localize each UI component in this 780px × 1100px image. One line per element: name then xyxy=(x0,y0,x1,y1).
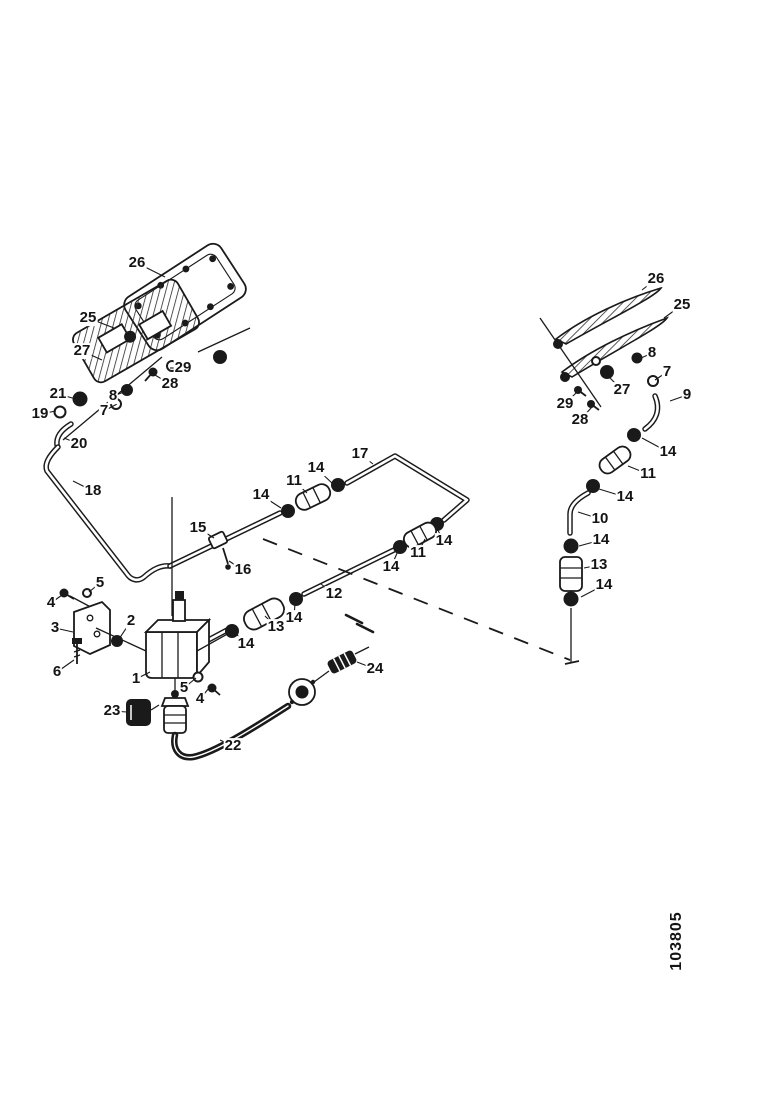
callout-31-item-4: 4 xyxy=(195,691,205,707)
callout-46-item-10: 10 xyxy=(591,511,610,527)
callout-38-item-7: 7 xyxy=(662,364,672,380)
figure-part-number: 103805 xyxy=(668,911,686,970)
callout-3-item-29: 29 xyxy=(174,360,193,376)
callout-26-item-3: 3 xyxy=(50,620,60,636)
callout-28-item-6: 6 xyxy=(52,664,62,680)
callout-37-item-8: 8 xyxy=(647,345,657,361)
callout-6-item-7: 7 xyxy=(99,403,109,419)
callout-8-item-19: 19 xyxy=(31,406,50,422)
callout-40-item-29: 29 xyxy=(556,396,575,412)
callout-49-item-14: 14 xyxy=(595,577,614,593)
callout-1-item-25: 25 xyxy=(79,310,98,326)
callout-42-item-9: 9 xyxy=(682,387,692,403)
callout-45-item-14: 14 xyxy=(616,489,635,505)
callout-36-item-25: 25 xyxy=(673,297,692,313)
callout-23-item-14: 14 xyxy=(237,636,256,652)
right-fitting-stack xyxy=(560,353,658,665)
callout-47-item-14: 14 xyxy=(592,532,611,548)
callout-5-item-8: 8 xyxy=(108,388,118,404)
callout-39-item-27: 27 xyxy=(613,382,632,398)
callout-9-item-20: 20 xyxy=(70,436,89,452)
callout-29-item-1: 1 xyxy=(131,671,141,687)
callout-4-item-28: 28 xyxy=(161,376,180,392)
callout-20-item-12: 12 xyxy=(325,586,344,602)
diagram-line-art xyxy=(0,0,780,1100)
callout-13-item-11: 11 xyxy=(285,473,303,489)
callout-27-item-2: 2 xyxy=(126,613,136,629)
callout-17-item-14: 14 xyxy=(435,533,454,549)
callout-19-item-14: 14 xyxy=(382,559,401,575)
callout-48-item-13: 13 xyxy=(590,557,609,573)
filter-13-right xyxy=(560,557,582,591)
callout-43-item-14: 14 xyxy=(659,444,678,460)
callout-15-item-15: 15 xyxy=(189,520,208,536)
callout-44-item-11: 11 xyxy=(639,466,657,482)
callout-25-item-4: 4 xyxy=(46,595,56,611)
callout-21-item-14: 14 xyxy=(285,610,304,626)
callout-32-item-23: 23 xyxy=(103,703,122,719)
callout-35-item-26: 26 xyxy=(647,271,666,287)
tube-18 xyxy=(46,447,170,580)
exploded-parts-diagram: 2625272928872119201817141114151614111412… xyxy=(0,0,780,1100)
callout-24-item-5: 5 xyxy=(95,575,105,591)
callout-12-item-14: 14 xyxy=(307,460,326,476)
callout-7-item-21: 21 xyxy=(49,386,68,402)
callout-10-item-18: 18 xyxy=(84,483,103,499)
callout-41-item-28: 28 xyxy=(571,412,590,428)
callout-22-item-13: 13 xyxy=(267,619,286,635)
callout-0-item-26: 26 xyxy=(128,255,147,271)
callout-34-item-24: 24 xyxy=(366,661,385,677)
callout-11-item-17: 17 xyxy=(351,446,370,462)
callout-33-item-22: 22 xyxy=(224,738,243,754)
callout-14-item-14: 14 xyxy=(252,487,271,503)
callout-16-item-16: 16 xyxy=(234,562,253,578)
callout-18-item-11: 11 xyxy=(409,545,427,561)
callout-2-item-27: 27 xyxy=(73,343,92,359)
callout-30-item-5: 5 xyxy=(179,680,189,696)
